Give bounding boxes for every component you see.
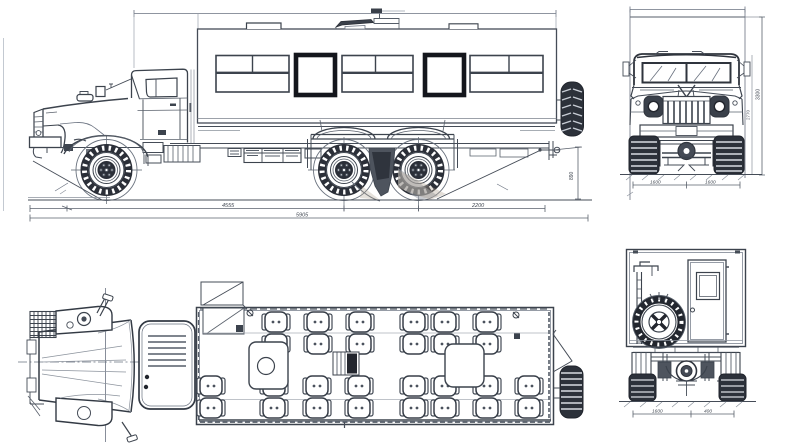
svg-text:1600: 1600	[650, 180, 661, 186]
svg-text:890: 890	[569, 171, 575, 180]
svg-text:3300: 3300	[756, 89, 762, 100]
svg-text:4555: 4555	[222, 203, 235, 209]
svg-text:2200: 2200	[471, 203, 485, 209]
svg-text:2770: 2770	[746, 109, 751, 120]
svg-text:1600: 1600	[705, 180, 716, 186]
svg-text:400: 400	[704, 409, 712, 415]
svg-text:1600: 1600	[652, 409, 663, 415]
svg-text:5905: 5905	[296, 213, 309, 219]
